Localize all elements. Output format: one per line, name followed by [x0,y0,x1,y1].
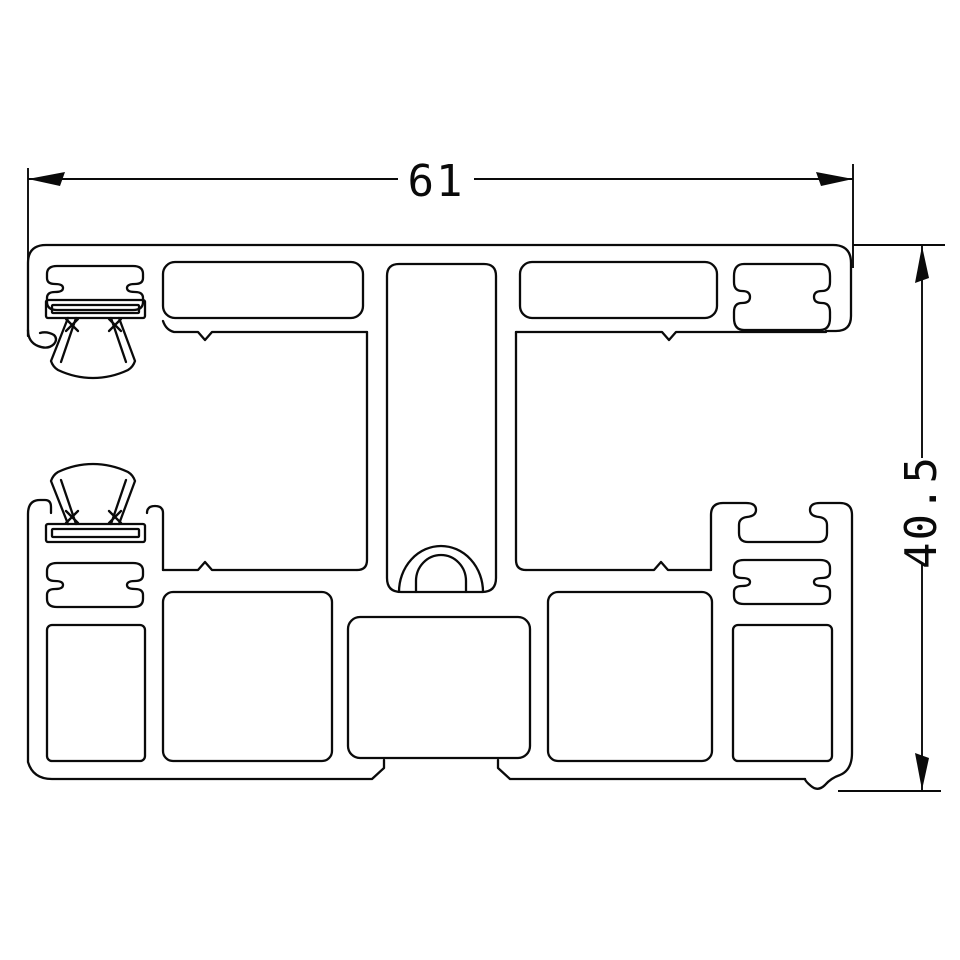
stem-slot [387,264,496,592]
chamber-bottom-right-small [733,625,832,761]
chamber-top-right [520,262,717,318]
dimension-label-height: 40.5 [896,455,947,569]
gasket-groove-top-right [734,264,830,330]
chamber-bottom-left-small [47,625,145,761]
brush-fan-top [51,318,135,378]
dimension-lines [28,164,945,791]
stem-right-wall [516,332,526,570]
arrow-height-bottom [915,753,929,790]
brush-rail-bottom-inner [52,529,139,537]
web-right-top-edge [526,562,711,570]
arrow-height-top [915,246,929,283]
top-bar-outline [28,245,851,336]
chamber-bottom-center [348,617,530,758]
top-bar-left-foot [28,330,56,348]
brush-rail-bottom-outer [46,524,145,542]
profile-outline [28,245,852,789]
brush-rail-bottom [46,524,145,542]
brush-fan-top-bristle-lines [61,318,126,362]
dimension-label-width: 61 [408,156,465,207]
dimension-annotations: 61 40.5 [28,156,947,791]
screw-boss-inner-arch [416,555,466,592]
bottom-left-block-shoulder [147,506,163,570]
profile-cross-section-drawing: 61 40.5 [0,0,960,960]
top-bar-bottom-edge-right [516,332,826,340]
arrow-width-left [28,172,65,186]
screw-boss-outer-arch [399,546,483,592]
stem-left-wall [357,332,367,570]
top-bar-bottom-edge-left [163,321,367,340]
gasket-groove-bottom-left [47,563,143,607]
gasket-groove-bottom-right [734,560,830,604]
web-left-top-edge [163,562,357,570]
brush-fan-bottom [51,464,135,524]
technical-drawing-canvas: 61 40.5 [0,0,960,960]
chamber-top-left [163,262,363,318]
gasket-groove-top-left [47,266,143,310]
chamber-bottom-left-large [163,592,332,761]
arrow-width-right [816,172,853,186]
chamber-bottom-right-large [548,592,712,761]
brush-fan-bottom-bristle-lines [61,480,126,524]
